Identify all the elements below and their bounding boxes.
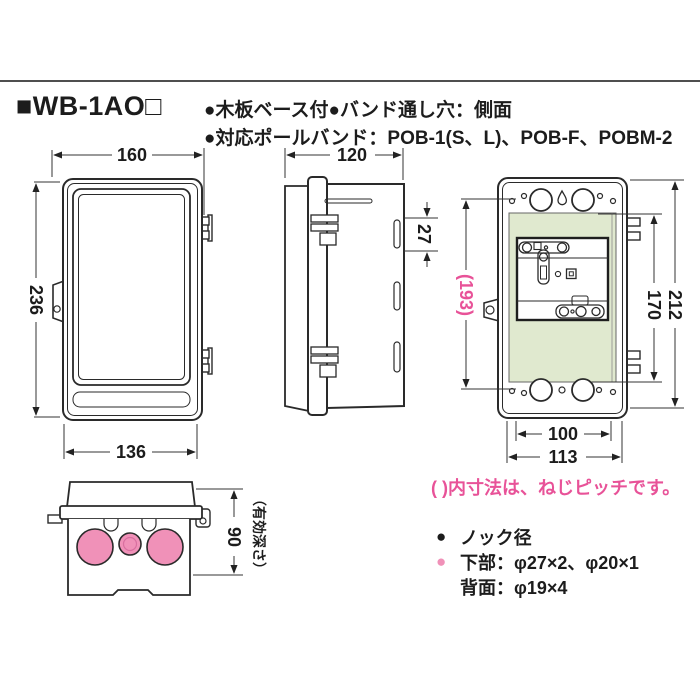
dim-band-slot-pitch: 27 (415, 221, 433, 247)
dim-rear-width: 113 (545, 448, 580, 466)
dim-effective-depth: 90 (225, 524, 243, 550)
dim-rear-knock-pitch: 100 (545, 425, 581, 443)
dim-front-height: 236 (27, 282, 45, 318)
dim-side-depth: 120 (334, 146, 370, 164)
side-view-drawing (285, 177, 404, 415)
screw-pitch-note: ( )内寸法は、ねじピッチです。 (431, 474, 680, 500)
bottom-view-drawing (48, 482, 210, 595)
dim-effective-depth-note: （有効深さ） (252, 491, 266, 577)
knock-diameter-title-row: ● ノック径 (436, 524, 532, 550)
knock-back-row: ● 背面：φ19×4 (436, 574, 567, 600)
dim-rear-base-height: 170 (645, 287, 663, 323)
knock-bottom-spec: 下部：φ27×2、φ20×1 (460, 549, 639, 575)
bullet-icon: ● (436, 527, 460, 547)
technical-drawing-canvas (0, 0, 700, 700)
catalog-page: { "header": { "model": "■WB-1AO□", "feat… (0, 0, 700, 700)
knock-bottom-row: ● 下部：φ27×2、φ20×1 (436, 549, 639, 575)
dim-rear-height: 212 (666, 287, 684, 323)
knock-title: ノック径 (460, 524, 532, 550)
pink-bullet-icon: ● (436, 552, 460, 572)
dim-front-width: 160 (114, 146, 150, 164)
mounting-plate (517, 238, 608, 320)
dim-front-inner-width: 136 (113, 443, 149, 461)
dim-rear-screw-pitch: (193) (457, 271, 475, 319)
front-view-drawing (53, 179, 212, 420)
knock-back-spec: 背面：φ19×4 (460, 574, 567, 600)
